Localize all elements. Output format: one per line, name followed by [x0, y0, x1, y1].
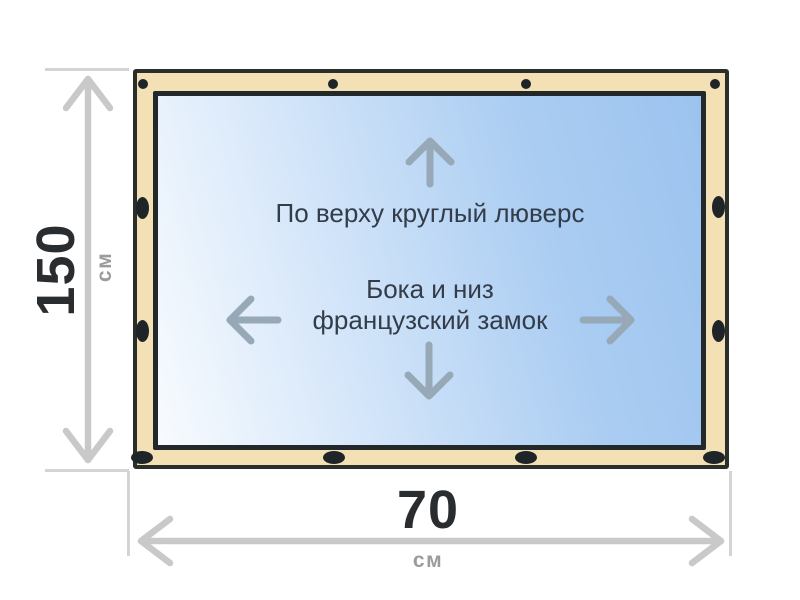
french-lock-icon [136, 320, 149, 342]
height-value: 150 [29, 185, 83, 355]
round-grommet-icon [521, 79, 531, 89]
width-extension-line-left [127, 471, 130, 556]
french-lock-icon [515, 451, 537, 464]
round-grommet-icon [138, 79, 148, 89]
width-value: 70 [328, 484, 528, 536]
french-lock-icon [712, 196, 725, 218]
round-grommet-icon [710, 79, 720, 89]
up-arrow-icon [402, 128, 458, 190]
french-lock-icon [703, 451, 725, 464]
sides-bottom-note: Бока и низ французский замок [228, 274, 632, 336]
round-grommet-icon [328, 79, 338, 89]
right-arrow-icon [575, 293, 641, 347]
sides-bottom-note-line1: Бока и низ [228, 274, 632, 305]
width-unit: см [378, 549, 478, 573]
height-extension-line-bottom [45, 469, 129, 472]
sides-bottom-note-line2: французский замок [228, 305, 632, 336]
top-edge-note: По верху круглый люверс [228, 198, 632, 229]
left-arrow-icon [220, 293, 286, 347]
french-lock-icon [136, 197, 149, 219]
french-lock-icon [131, 451, 153, 464]
height-unit: см [93, 227, 117, 307]
width-extension-line-right [729, 471, 732, 556]
french-lock-icon [323, 451, 345, 464]
down-arrow-icon [401, 337, 457, 403]
dimension-diagram: По верху круглый люверс Бока и низ франц… [0, 0, 800, 600]
french-lock-icon [712, 320, 725, 342]
